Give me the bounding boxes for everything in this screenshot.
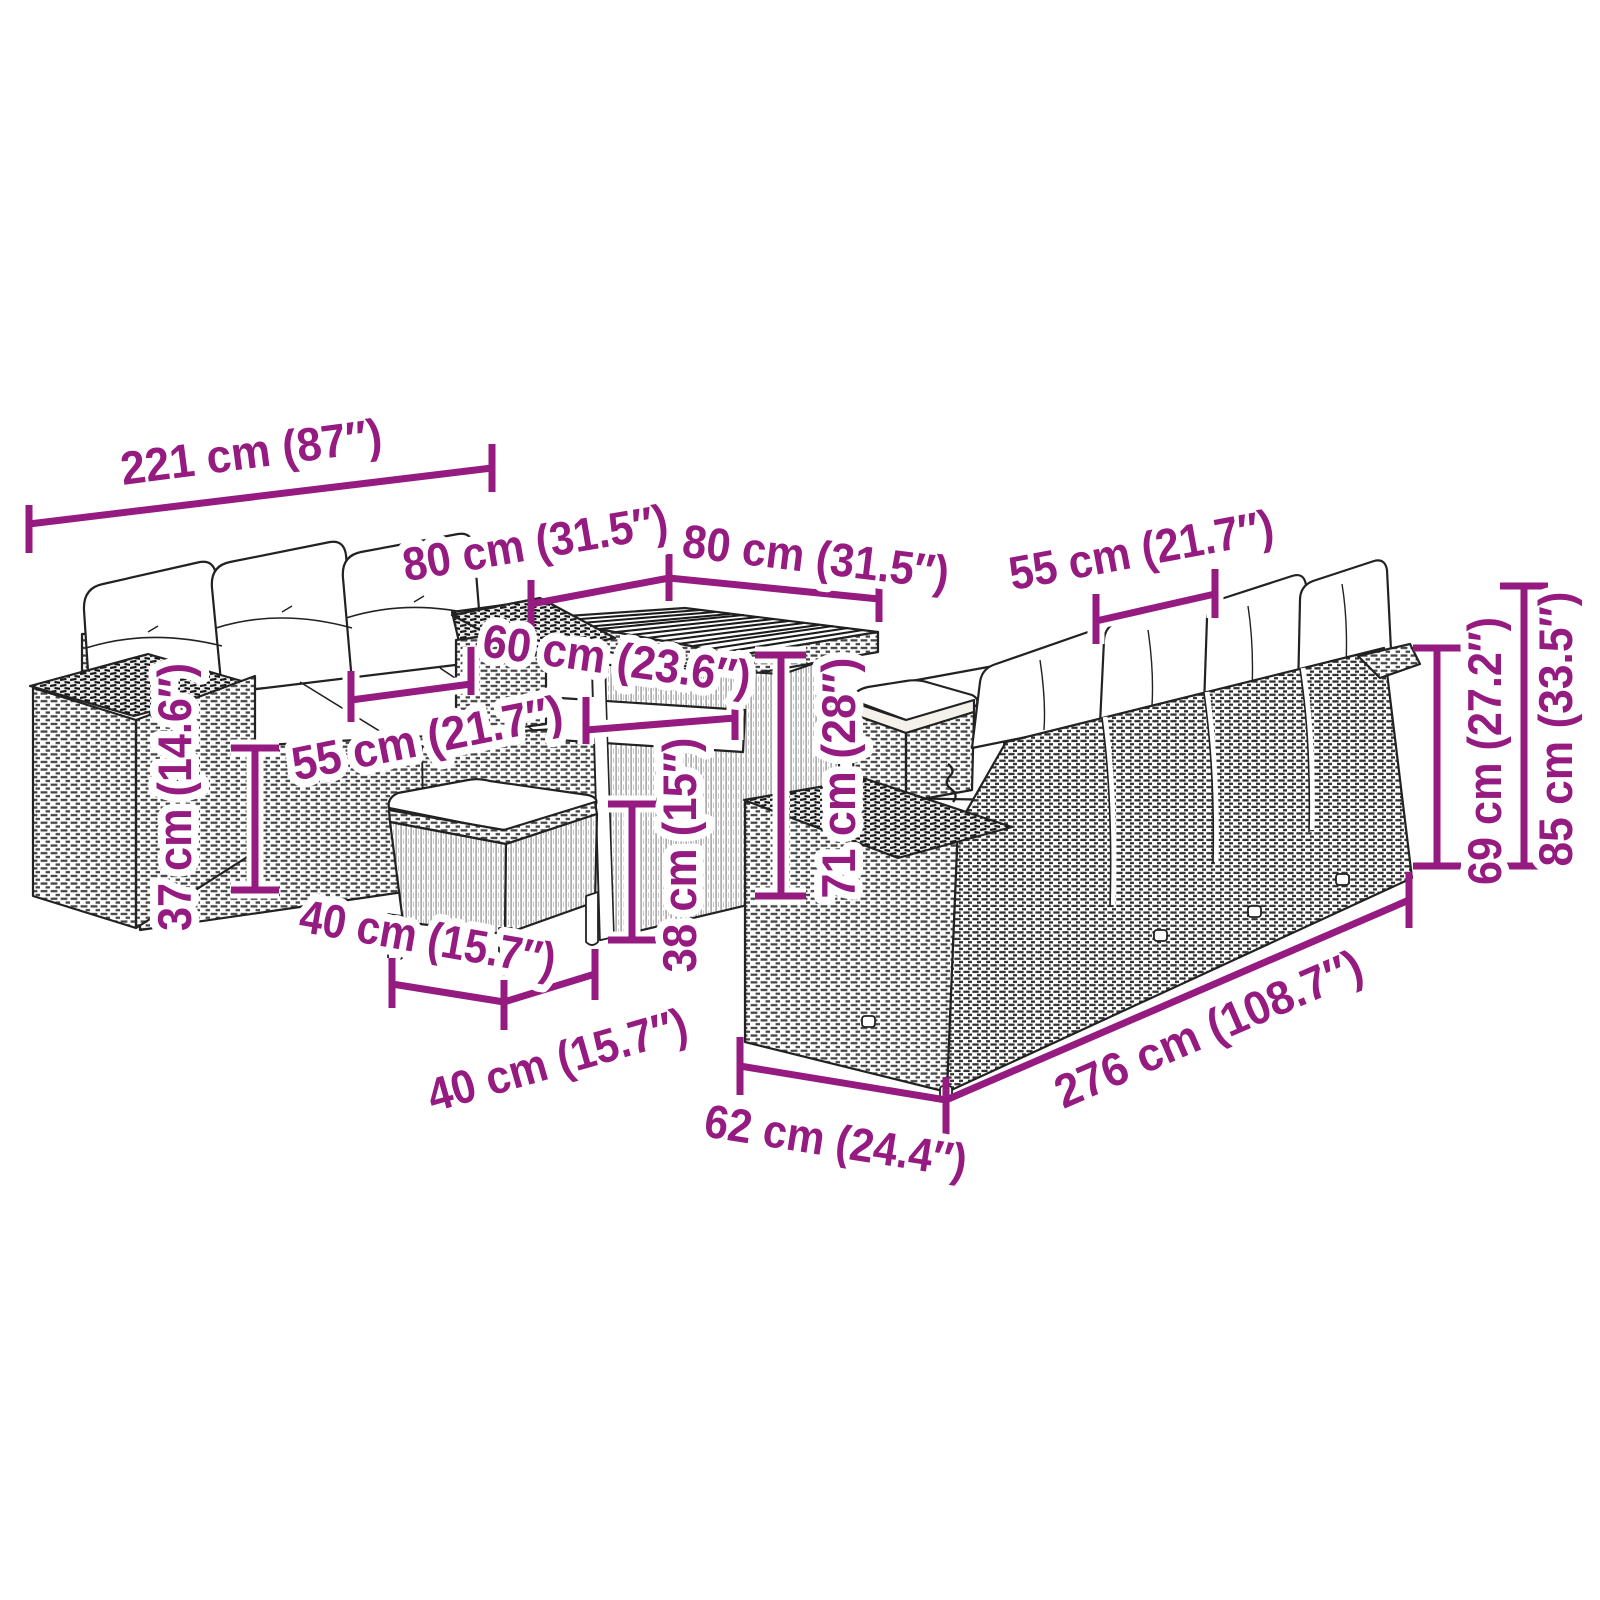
svg-text:80 cm (31.5″): 80 cm (31.5″) [399,494,672,591]
svg-text:221 cm (87″): 221 cm (87″) [117,408,385,495]
svg-text:69 cm (27.2″): 69 cm (27.2″) [1458,617,1511,885]
svg-text:85 cm (33.5″): 85 cm (33.5″) [1529,592,1582,867]
svg-text:37 cm (14.6″): 37 cm (14.6″) [148,663,201,931]
svg-text:55 cm (21.7″): 55 cm (21.7″) [1005,499,1278,600]
svg-text:62 cm (24.4″): 62 cm (24.4″) [701,1094,971,1188]
svg-text:40 cm (15.7″): 40 cm (15.7″) [421,997,693,1122]
svg-text:38 cm (15″): 38 cm (15″) [653,738,706,973]
svg-text:71 cm (28″): 71 cm (28″) [812,658,865,899]
